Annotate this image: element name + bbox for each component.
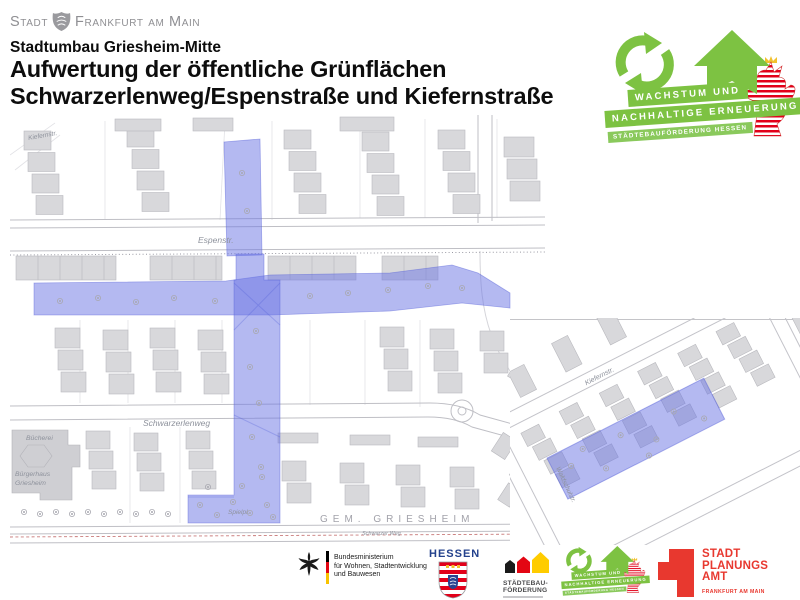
building (448, 173, 475, 192)
stadtplanungsamt-logo: STADT PLANUNGS AMT FRANKFURT AM MAIN (658, 549, 768, 598)
hessen-shield-icon (438, 561, 468, 599)
label-griesheim: Griesheim (15, 480, 46, 487)
building (384, 349, 408, 369)
building (294, 173, 321, 192)
arrow-head-icon (644, 32, 662, 54)
tree-icon (251, 436, 252, 437)
building (380, 327, 404, 347)
tree-icon (135, 301, 136, 302)
building (507, 159, 537, 179)
building (450, 467, 474, 487)
building (28, 153, 55, 172)
title-line-1: Aufwertung der öffentliche Grünflächen (10, 56, 553, 83)
tree-icon (55, 511, 56, 512)
building (453, 195, 480, 214)
building (372, 175, 399, 194)
building (150, 328, 175, 348)
tree-icon (249, 366, 250, 367)
tree-icon (207, 486, 208, 487)
building (192, 471, 216, 489)
tree-icon (570, 465, 572, 467)
building (350, 435, 390, 445)
building (92, 471, 116, 489)
building (401, 487, 425, 507)
tree-icon (673, 411, 675, 413)
bmwsb-text: Bundesministerium für Wohnen, Stadtentwi… (334, 551, 427, 580)
label-gemarkung: GEM. GRIESHEIM (320, 514, 474, 525)
building (510, 181, 540, 201)
title-line-2: Schwarzerlenweg/Espenstraße und Kieferns… (10, 83, 553, 110)
tree-icon (39, 513, 40, 514)
building (186, 431, 210, 449)
tree-icon (266, 504, 267, 505)
tree-icon (119, 511, 120, 512)
program-logo-small: WACHSTUM UND NACHHALTIGE ERNEUERUNG STÄD… (561, 546, 651, 600)
building (115, 119, 161, 131)
hessen-logo: HESSEN (429, 548, 477, 600)
tree-icon (427, 285, 428, 286)
recycle-arrows-icon (621, 40, 669, 86)
tree-icon (241, 485, 242, 486)
tree-icon (258, 402, 259, 403)
tree-icon (23, 511, 24, 512)
building (438, 130, 465, 149)
label-buergerhaus: Bürgerhaus (15, 471, 51, 478)
planungsamt-text: STADT PLANUNGS AMT FRANKFURT AM MAIN (702, 549, 768, 598)
tree-icon (246, 210, 247, 211)
tree-icon (173, 297, 174, 298)
building (204, 374, 229, 394)
building (367, 154, 394, 173)
building (289, 152, 316, 171)
staedtebau-text: STÄDTEBAU- FÖRDERUNG (503, 580, 561, 594)
bmwsb-logo: Bundesministerium für Wohnen, Stadtentwi… (297, 551, 427, 584)
building (345, 485, 369, 505)
tree-icon (214, 300, 215, 301)
building (103, 330, 128, 350)
label-schwarzer-weg: Schwarzer Weg (362, 531, 402, 537)
tree-icon (347, 292, 348, 293)
building (86, 431, 110, 449)
city-word: Frankfurt am Main (75, 14, 200, 30)
staedtebaufoerderung-logo: STÄDTEBAU- FÖRDERUNG (503, 551, 561, 600)
building (418, 437, 458, 447)
building (455, 489, 479, 509)
building (106, 352, 131, 372)
label-espenstr: Espenstr. (198, 235, 234, 245)
building (150, 256, 222, 280)
building (284, 130, 311, 149)
building (198, 330, 223, 350)
tree-icon (103, 513, 104, 514)
building (430, 329, 454, 349)
tree-icon (605, 468, 607, 470)
building (377, 197, 404, 216)
slide-subtitle: Stadtumbau Griesheim-Mitte (10, 39, 221, 57)
slide-title: Aufwertung der öffentliche Grünflächen S… (10, 56, 553, 109)
building (36, 196, 63, 215)
building (287, 483, 311, 503)
building (16, 256, 116, 280)
building (340, 463, 364, 483)
tree-icon (620, 434, 622, 436)
label-schwarzerlenweg: Schwarzerlenweg (143, 418, 210, 428)
building (153, 350, 178, 370)
building (434, 351, 458, 371)
tree-icon (656, 439, 658, 441)
tree-icon (71, 513, 72, 514)
building (388, 371, 412, 391)
tree-icon (648, 455, 650, 457)
building (32, 174, 59, 193)
building (140, 473, 164, 491)
building (142, 193, 169, 212)
inset-map: Kiefernstr. Waldschulstr. (510, 318, 800, 545)
building (61, 372, 86, 392)
building (443, 152, 470, 171)
label-spielplatz: Spielpl. (228, 509, 250, 516)
building (504, 137, 534, 157)
tree-icon (241, 172, 242, 173)
stadt-word: Stadt (10, 14, 48, 30)
building (480, 331, 504, 351)
recycle-arrows-icon (568, 551, 589, 571)
fineprint-line (503, 596, 543, 598)
tree-icon (703, 418, 705, 420)
tree-icon (59, 300, 60, 301)
tree-icon (255, 330, 256, 331)
label-buecherei: Bücherei (26, 435, 53, 442)
building (278, 433, 318, 443)
main-map: Kiefernstr. Espenstr. Schwarzerlenweg Bü… (10, 115, 545, 545)
building (137, 453, 161, 471)
building (89, 451, 113, 469)
tree-icon (135, 513, 136, 514)
tree-icon (97, 297, 98, 298)
building (340, 117, 394, 131)
building (282, 461, 306, 481)
building (132, 150, 159, 169)
building (58, 350, 83, 370)
tree-icon (309, 295, 310, 296)
federal-eagle-icon (297, 551, 321, 577)
three-houses-icon (503, 551, 551, 573)
building (137, 171, 164, 190)
tree-icon (151, 511, 152, 512)
building (299, 195, 326, 214)
tree-icon (260, 466, 261, 467)
building (189, 451, 213, 469)
tree-icon (87, 511, 88, 512)
tree-icon (272, 516, 273, 517)
planungsamt-mark-icon (658, 549, 694, 597)
tree-icon (461, 287, 462, 288)
building (109, 374, 134, 394)
tree-icon (261, 476, 262, 477)
building (55, 328, 80, 348)
tree-icon (167, 513, 168, 514)
stadt-frankfurt-logo: Stadt Frankfurt am Main (10, 11, 200, 32)
building (484, 353, 508, 373)
tree-icon (199, 504, 200, 505)
building (201, 352, 226, 372)
tree-icon (216, 514, 217, 515)
slide: Stadt Frankfurt am Main Stadtumbau Gries… (0, 0, 800, 600)
hessen-wordmark: HESSEN (429, 548, 477, 560)
building (362, 132, 389, 151)
building (156, 372, 181, 392)
tree-icon (249, 512, 250, 513)
tree-icon (582, 448, 584, 450)
building (438, 373, 462, 393)
tree-icon (232, 501, 233, 502)
building (396, 465, 420, 485)
german-flag-bar-icon (326, 551, 329, 584)
frankfurt-crest-icon (52, 11, 71, 32)
tree-icon (387, 289, 388, 290)
building (193, 118, 233, 131)
building (134, 433, 158, 451)
program-logo: WACHSTUM UND NACHHALTIGE ERNEUERUNG STÄD… (604, 30, 800, 152)
